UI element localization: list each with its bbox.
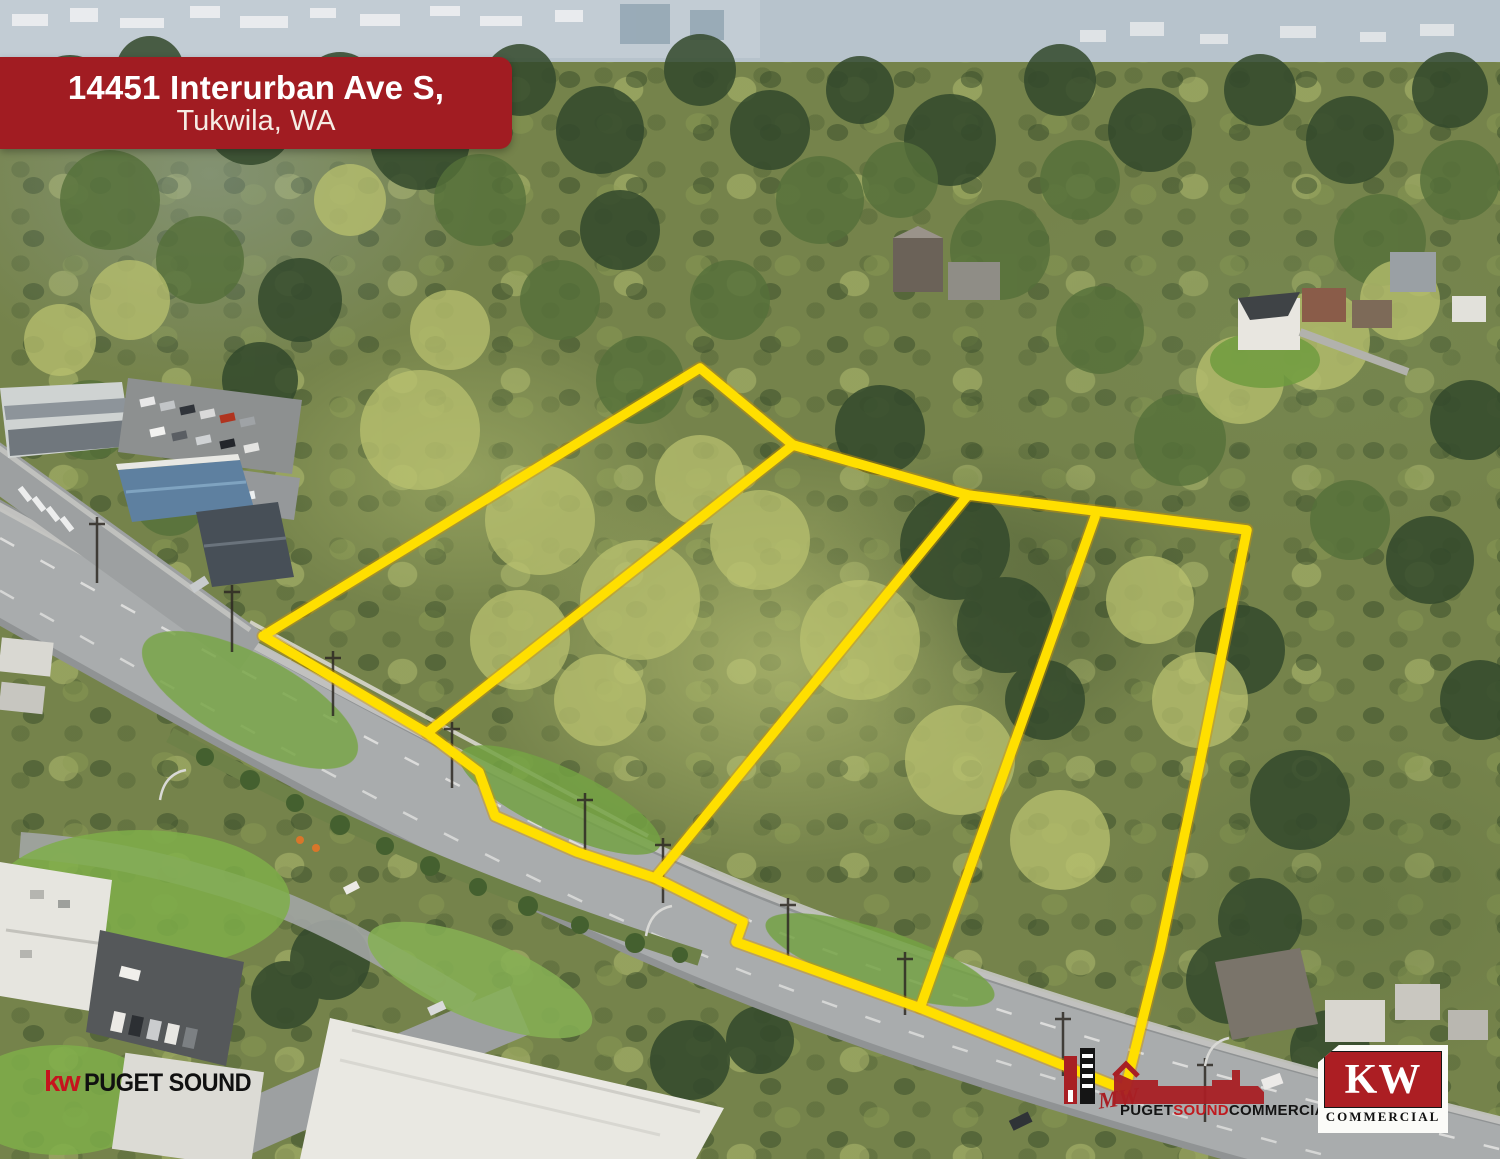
address-line-2: Tukwila, WA [177,106,336,136]
aerial-listing-image: 14451 Interurban Ave S, Tukwila, WA kw P… [0,0,1500,1159]
distant-valley [0,0,1500,62]
kw-monogram: KW [1345,1059,1422,1101]
kw-commercial-logo: KW COMMERCIAL [1318,1045,1448,1133]
kw-puget-sound-logo: kw PUGET SOUND [44,1068,262,1097]
kw-red-box: KW [1324,1051,1442,1108]
kw-wordmark: kw [44,1068,79,1097]
puget-sound-commercial-wordmark: PUGETSOUNDCOMMERCIAL [1120,1102,1335,1119]
boundary-divider-2 [655,495,968,878]
gray-gable-building [196,502,294,587]
puget-sound-wordmark: PUGET SOUND [84,1071,251,1096]
address-line-1: 14451 Interurban Ave S, [68,70,444,106]
word-sound: SOUND [1173,1102,1229,1119]
aerial-scene [0,0,1500,1159]
word-puget: PUGET [1120,1102,1173,1119]
commercial-wordmark: COMMERCIAL [1318,1109,1448,1125]
puget-sound-commercial-logo: MW PUGETSOUNDCOMMERCIAL [1062,1046,1277,1124]
address-banner: 14451 Interurban Ave S, Tukwila, WA [0,57,512,149]
office-building [0,382,132,458]
left-edge-buildings [0,637,54,714]
city-skyline-icon [1062,1046,1277,1106]
